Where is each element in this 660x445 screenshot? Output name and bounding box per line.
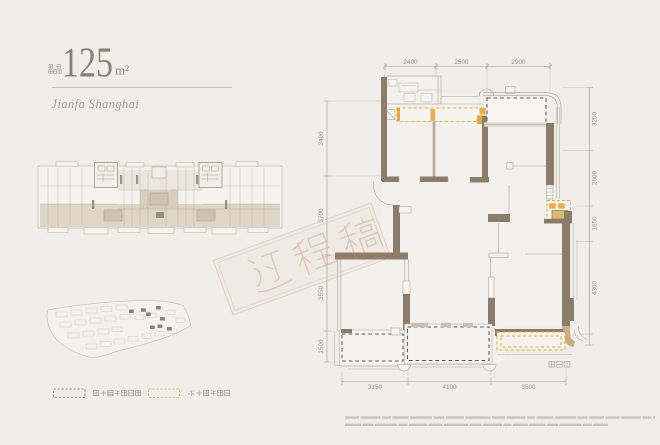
- svg-text:m²: m²: [115, 63, 129, 78]
- svg-text:4300: 4300: [592, 280, 599, 295]
- svg-text:3200: 3200: [592, 111, 599, 126]
- svg-text:2900: 2900: [511, 59, 526, 66]
- svg-text:2600: 2600: [592, 170, 599, 185]
- svg-text:3400: 3400: [318, 131, 325, 146]
- svg-text:Jianfa Shanghai: Jianfa Shanghai: [52, 97, 140, 111]
- svg-text:4100: 4100: [442, 384, 457, 391]
- svg-text:3500: 3500: [521, 384, 536, 391]
- svg-text:3550: 3550: [318, 285, 325, 300]
- svg-text:2500: 2500: [454, 59, 469, 66]
- svg-text:125: 125: [62, 40, 113, 86]
- svg-text:3150: 3150: [368, 384, 383, 391]
- svg-text:2400: 2400: [403, 59, 418, 66]
- svg-text:1650: 1650: [592, 216, 599, 231]
- svg-text:1500: 1500: [318, 339, 325, 354]
